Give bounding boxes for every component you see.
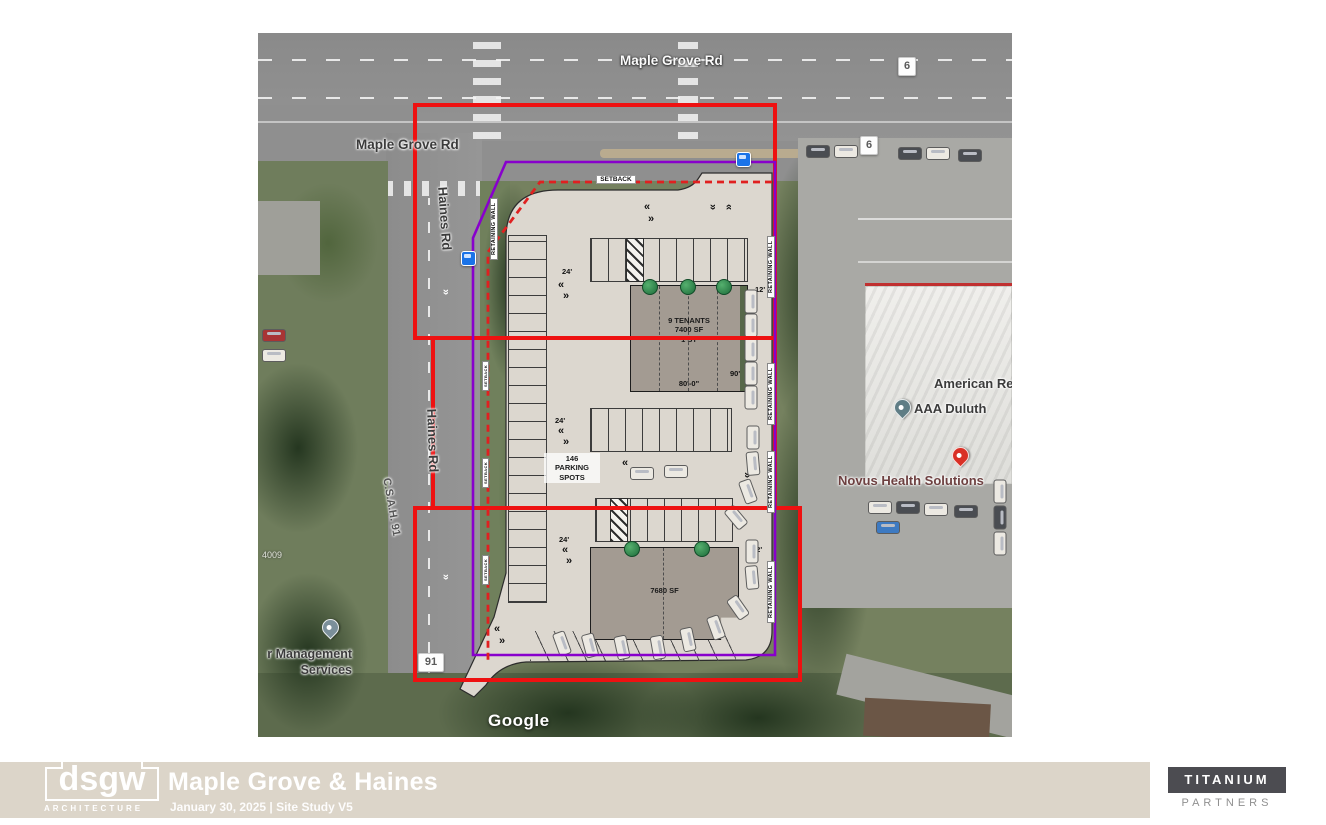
road-label-maple-grove-west: Maple Grove Rd: [356, 137, 459, 152]
building-north-label: 9 TENANTS 7400 SF 1 ST: [631, 316, 747, 344]
flow-arrow-right: »: [648, 215, 654, 223]
tree: [716, 279, 732, 295]
retaining-wall-label: RETAINING WALL: [490, 198, 498, 260]
aerial-map: « «: [258, 33, 1012, 737]
building-north-stories: 1 ST: [631, 335, 747, 344]
retaining-wall-label: RETAINING WALL: [767, 236, 775, 298]
poi-label-novus: Novus Health Solutions: [838, 473, 984, 488]
crosswalk-hatch: [610, 498, 628, 542]
car: [745, 338, 758, 362]
poi-label-management-line1: r Management: [258, 647, 352, 661]
car: [745, 290, 758, 314]
titanium-partners-text: PARTNERS: [1168, 797, 1286, 809]
titanium-logo-box: TITANIUM: [1168, 767, 1286, 793]
flow-arrow-right: »: [563, 292, 569, 300]
building-north-tenants: 9 TENANTS: [631, 316, 747, 325]
flow-arrow-left: «: [558, 427, 564, 435]
tree: [694, 541, 710, 557]
car: [746, 540, 759, 564]
slide-title: Maple Grove & Haines: [168, 768, 438, 797]
tree: [624, 541, 640, 557]
bus-stop-icon: [736, 152, 751, 167]
flow-arrow-left: «: [644, 203, 650, 211]
setback-label-small: SETBACK: [482, 361, 489, 391]
car: [745, 362, 758, 386]
dsgw-logo-outline: dsgw: [36, 740, 168, 802]
parking-stalls-west: [508, 235, 547, 603]
aisle-dim-24: 24': [559, 535, 569, 544]
road-label-haines-south: Haines Rd: [424, 408, 441, 472]
poi-label-american: American Re: [934, 376, 1012, 391]
parking-count-note: 146 PARKING SPOTS: [544, 453, 600, 483]
car: [745, 386, 758, 410]
setback-label-small: SETBACK: [482, 555, 489, 585]
flow-arrow-right: »: [499, 637, 505, 645]
flow-arrow-down: »: [725, 204, 733, 210]
parking-count-word2: SPOTS: [544, 473, 600, 482]
dsgw-logo-text: dsgw: [59, 760, 146, 798]
building-north-depth-dim: 90': [730, 369, 740, 378]
address-label: 4009: [262, 550, 282, 560]
flow-arrow-left: «: [562, 546, 568, 554]
parking-count-word1: PARKING: [544, 463, 600, 472]
setback-label-small: SETBACK: [482, 458, 489, 488]
flow-arrow-right: »: [563, 438, 569, 446]
site-study-slide: « «: [0, 0, 1326, 825]
retaining-wall-label: RETAINING WALL: [767, 363, 775, 425]
setback-label: SETBACK: [596, 175, 636, 184]
flow-arrow-right: »: [566, 557, 572, 565]
flow-arrow-left: «: [494, 625, 500, 633]
retaining-wall-label: RETAINING WALL: [767, 561, 775, 623]
flow-arrow-up: «: [709, 204, 717, 210]
flow-arrow-left: «: [622, 459, 628, 467]
car: [664, 465, 688, 478]
tree: [680, 279, 696, 295]
google-watermark: Google: [488, 711, 550, 731]
poi-label-management-line2: Services: [258, 663, 352, 677]
aisle-dim-24: 24': [555, 416, 565, 425]
route-6-shield: 6: [898, 57, 916, 76]
building-south-area: 7680 SF: [591, 586, 738, 595]
poi-label-aaa-duluth: AAA Duluth: [914, 401, 986, 416]
aisle-dim-24: 24': [562, 267, 572, 276]
car: [744, 565, 759, 590]
parking-stalls-north: [590, 238, 748, 282]
dsgw-logo: dsgw ARCHITECTURE: [36, 740, 168, 822]
flow-arrow-left: «: [558, 281, 564, 289]
building-north-width-dim: 80'-0": [631, 379, 747, 388]
car: [738, 478, 758, 505]
route-91-shield: 91: [418, 653, 444, 672]
car: [745, 314, 758, 338]
road-label-maple-grove-top: Maple Grove Rd: [620, 53, 723, 68]
bus-stop-icon: [461, 251, 476, 266]
crosswalk-hatch: [626, 238, 644, 282]
building-south-label: 7680 SF: [591, 586, 738, 595]
car: [630, 467, 654, 480]
tree: [642, 279, 658, 295]
building-north-area: 7400 SF: [631, 325, 747, 334]
retaining-wall-label: RETAINING WALL: [767, 451, 775, 513]
slide-subtitle: January 30, 2025 | Site Study V5: [170, 800, 353, 814]
dsgw-logo-tagline: ARCHITECTURE: [44, 804, 143, 813]
car: [745, 451, 760, 476]
parking-count-number: 146: [544, 454, 600, 463]
car: [747, 426, 760, 450]
parking-stalls-middle: [590, 408, 732, 452]
route-6-shield: 6: [860, 136, 878, 155]
